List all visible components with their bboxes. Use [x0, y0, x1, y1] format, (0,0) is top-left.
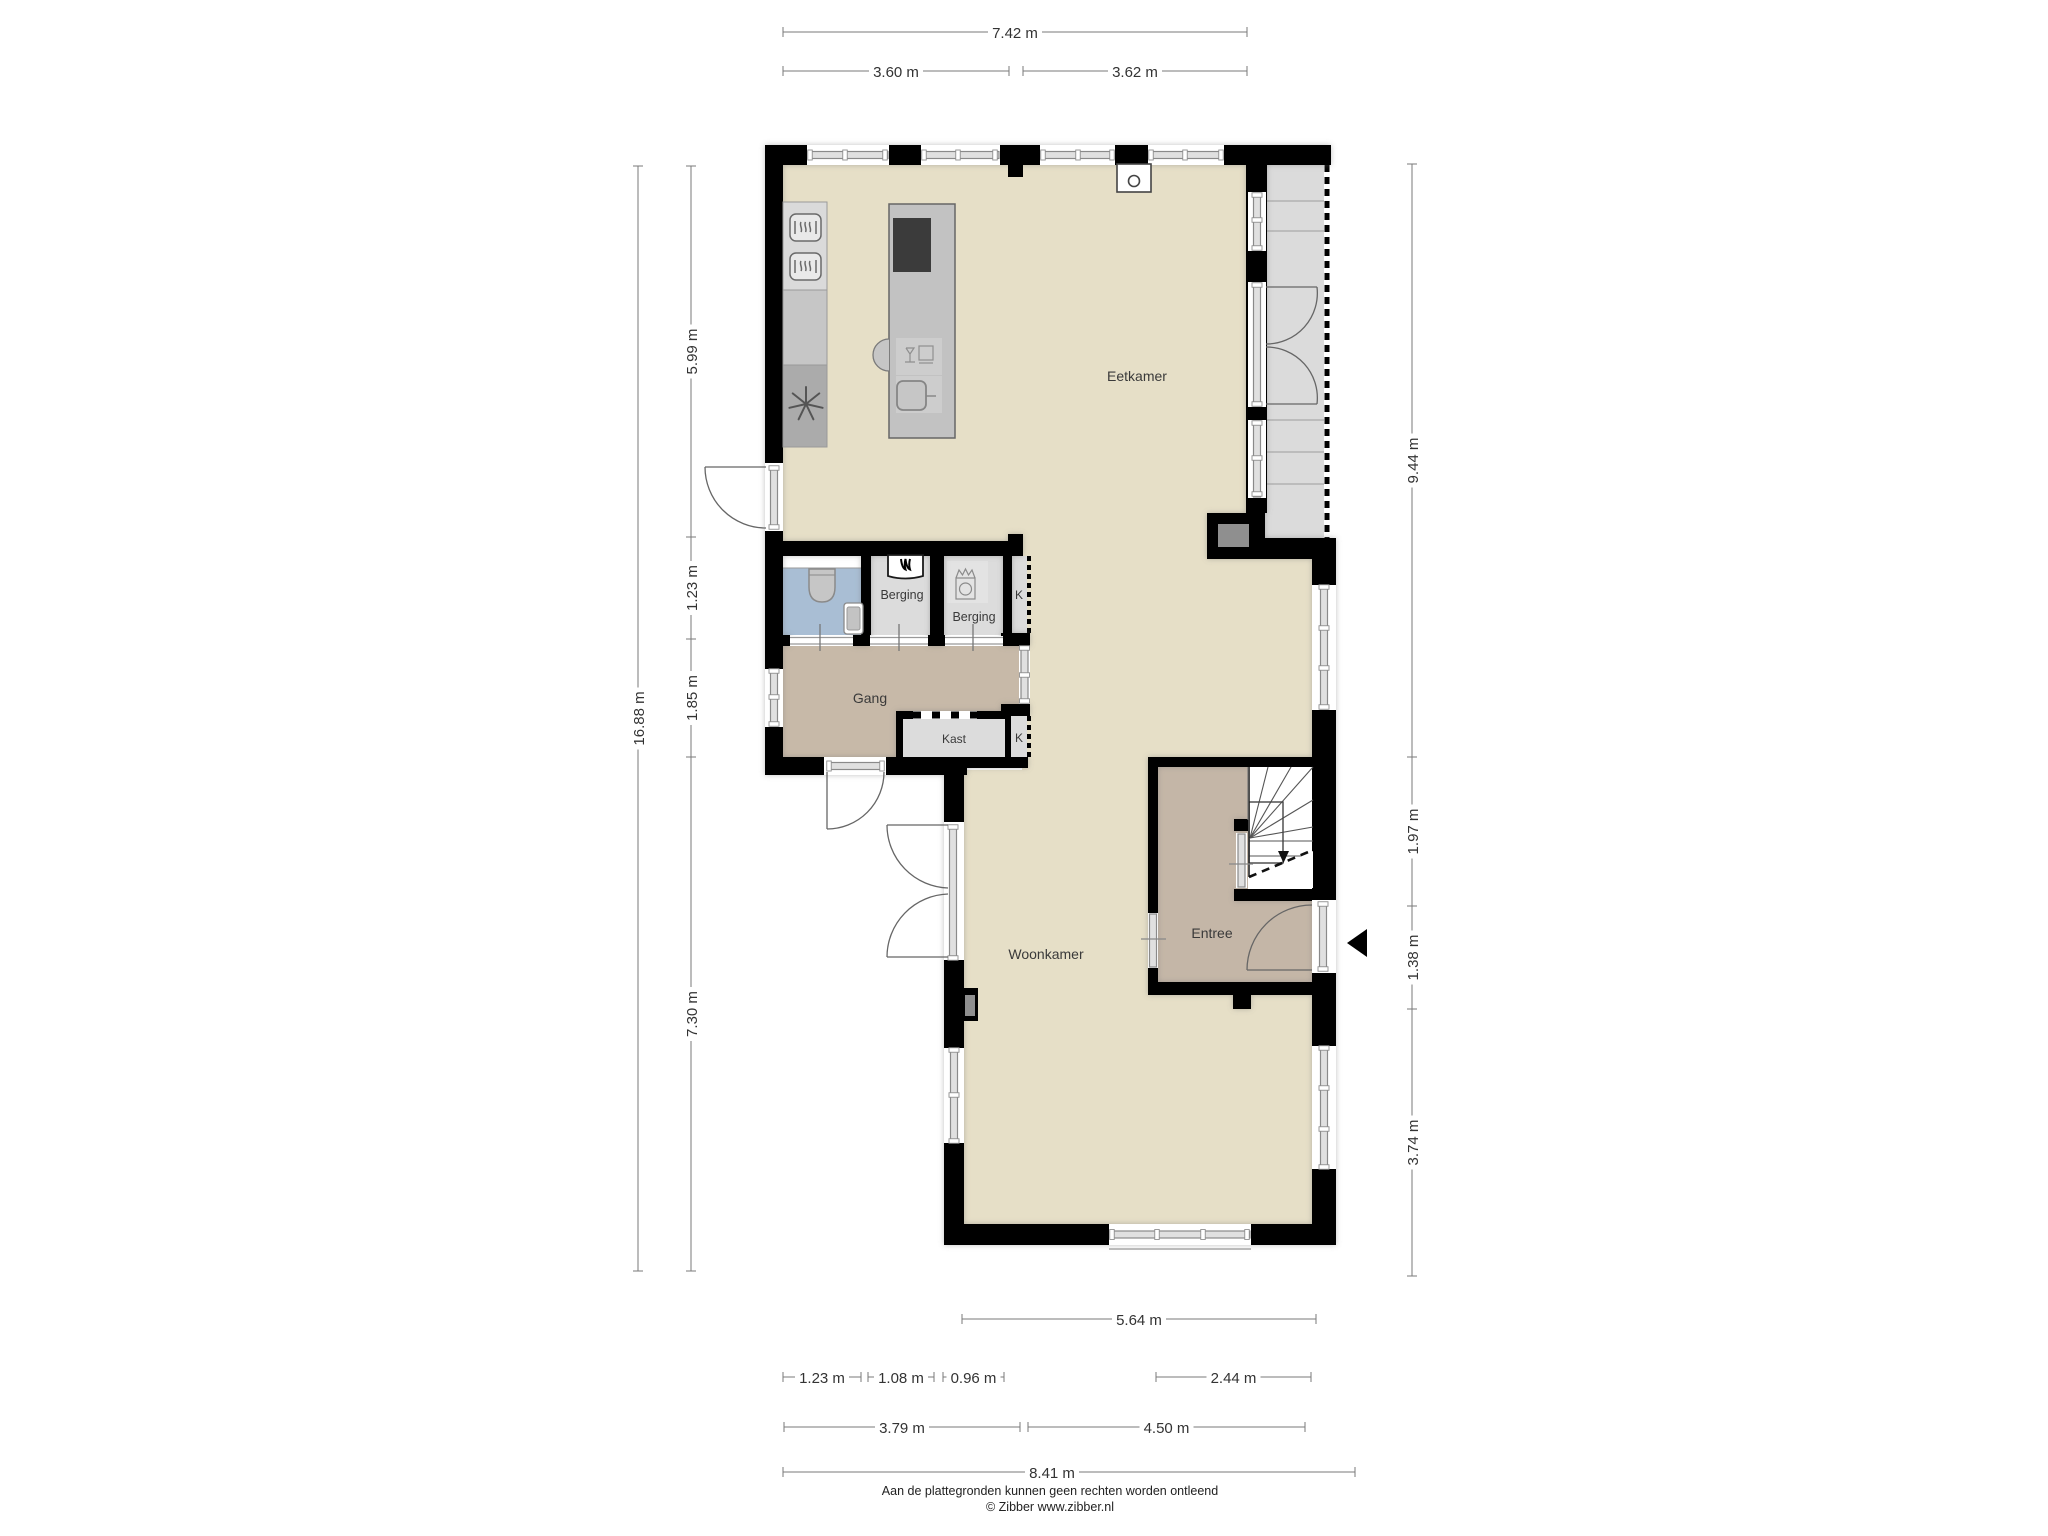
svg-text:© Zibber www.zibber.nl: © Zibber www.zibber.nl	[986, 1500, 1114, 1514]
svg-text:1.08 m: 1.08 m	[878, 1370, 924, 1387]
svg-text:7.42 m: 7.42 m	[992, 25, 1038, 42]
svg-text:7.30 m: 7.30 m	[684, 991, 701, 1037]
svg-text:1.23 m: 1.23 m	[799, 1370, 845, 1387]
svg-text:1.23 m: 1.23 m	[684, 565, 701, 611]
svg-text:K: K	[1015, 588, 1023, 602]
svg-text:Aan de plattegronden kunnen ge: Aan de plattegronden kunnen geen rechten…	[882, 1484, 1218, 1498]
svg-text:Entree: Entree	[1191, 925, 1232, 941]
svg-text:16.88 m: 16.88 m	[631, 691, 648, 745]
svg-text:5.99 m: 5.99 m	[684, 329, 701, 375]
svg-text:Kast: Kast	[942, 732, 967, 746]
svg-text:Woonkamer: Woonkamer	[1008, 946, 1084, 962]
svg-text:9.44 m: 9.44 m	[1405, 438, 1422, 484]
svg-text:1.85 m: 1.85 m	[684, 675, 701, 721]
svg-text:5.64 m: 5.64 m	[1116, 1312, 1162, 1329]
svg-text:1.38 m: 1.38 m	[1405, 935, 1422, 981]
svg-text:3.60 m: 3.60 m	[873, 64, 919, 81]
svg-text:1.97 m: 1.97 m	[1405, 809, 1422, 855]
svg-text:3.62 m: 3.62 m	[1112, 64, 1158, 81]
svg-text:3.74 m: 3.74 m	[1405, 1120, 1422, 1166]
svg-text:Berging: Berging	[952, 610, 995, 624]
svg-text:Berging: Berging	[880, 588, 923, 602]
svg-text:K: K	[1015, 731, 1023, 745]
svg-text:0.96 m: 0.96 m	[951, 1370, 997, 1387]
svg-text:2.44 m: 2.44 m	[1211, 1370, 1257, 1387]
svg-text:3.79 m: 3.79 m	[879, 1420, 925, 1437]
svg-text:8.41 m: 8.41 m	[1029, 1465, 1075, 1482]
svg-text:Gang: Gang	[853, 690, 887, 706]
svg-text:Eetkamer: Eetkamer	[1107, 368, 1167, 384]
svg-text:4.50 m: 4.50 m	[1144, 1420, 1190, 1437]
